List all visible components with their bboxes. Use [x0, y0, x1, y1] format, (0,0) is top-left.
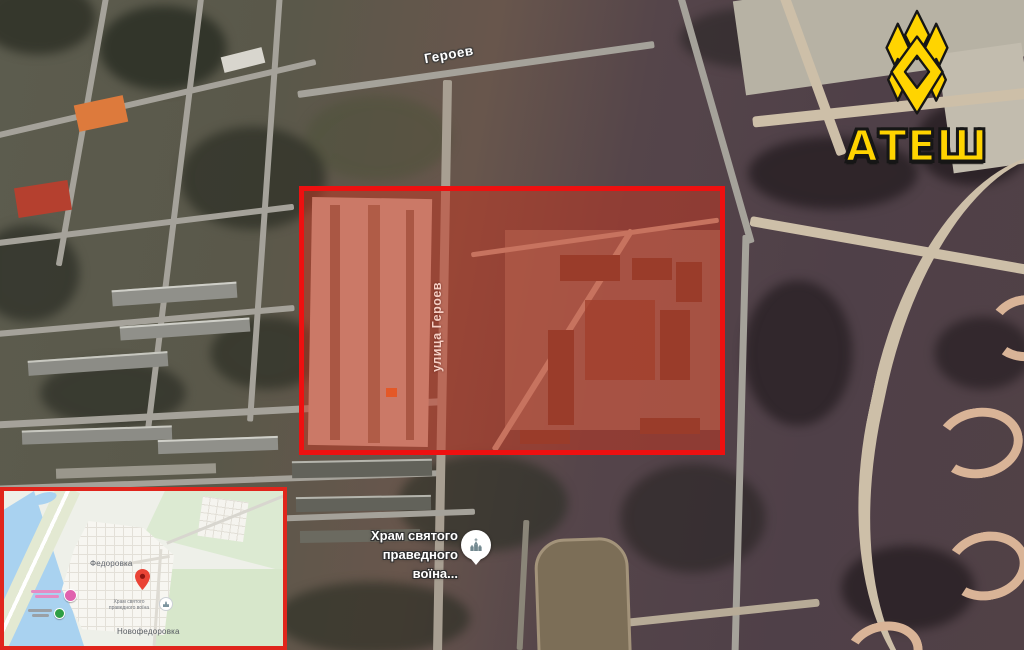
road-segment	[732, 235, 750, 650]
apartment-block	[158, 436, 278, 454]
label-church-small: Храм святого праведного воїна	[100, 599, 158, 611]
park-poi-label-blur	[28, 609, 52, 612]
church-icon	[461, 530, 491, 560]
park-poi-label-blur	[32, 614, 49, 617]
hotel-poi-label-blur	[31, 590, 61, 593]
inset-locator-map: Федоровка Новофедоровка Храм святого пра…	[0, 487, 287, 650]
atesh-logo: АТЕШ	[812, 5, 1022, 170]
garage-row	[56, 463, 216, 479]
apartment-block	[22, 425, 172, 444]
map-pin-icon	[135, 569, 150, 590]
building	[221, 47, 266, 73]
label-novofedorovka: Новофедоровка	[117, 627, 180, 636]
apartment-block	[112, 282, 238, 307]
hotel-poi-icon	[64, 589, 77, 602]
annotated-satellite-map: Героев улица Героев Храм святого праведн…	[0, 0, 1024, 650]
sports-field	[534, 536, 633, 650]
highlight-rectangle	[299, 186, 725, 455]
street-label-ulitsa-geroev: улица Героев	[430, 254, 444, 372]
church-glyph	[467, 536, 485, 554]
hotel-poi-label-blur	[35, 595, 59, 598]
path	[600, 599, 820, 630]
building	[14, 180, 72, 218]
park-poi-icon	[54, 608, 65, 619]
church-small-icon	[159, 597, 173, 611]
apartment-block	[28, 351, 169, 376]
building	[74, 95, 129, 132]
label-fedorovka: Федоровка	[90, 559, 133, 568]
road-segment	[517, 520, 530, 650]
road-segment-geroev	[297, 41, 654, 98]
church-poi-label: Храм святого праведного воїна...	[344, 527, 458, 584]
apartment-block	[296, 495, 431, 512]
atesh-wordmark: АТЕШ	[812, 121, 1022, 171]
apartment-block	[292, 459, 432, 478]
atesh-emblem-icon	[869, 5, 965, 121]
